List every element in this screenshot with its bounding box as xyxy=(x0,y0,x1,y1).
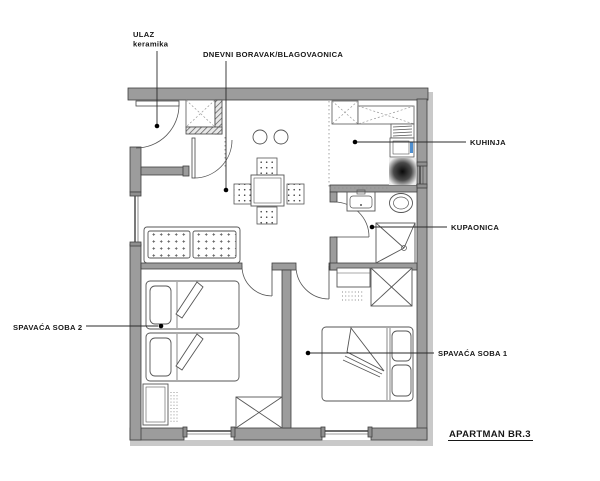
single-bed-2 xyxy=(146,333,239,381)
wall-bottom-2 xyxy=(234,428,322,440)
window-left xyxy=(130,192,141,246)
nightstand xyxy=(143,384,168,425)
kitchen-cabinet-wide xyxy=(358,106,414,124)
wall-bottom-3 xyxy=(371,428,427,440)
stool-2 xyxy=(274,130,288,144)
bedroom2-door xyxy=(242,266,272,296)
kitchen-fixtures xyxy=(329,101,416,188)
window-bottom-right xyxy=(321,427,372,437)
plan-title-group: APARTMAN BR.3 xyxy=(448,429,533,441)
plan-title: APARTMAN BR.3 xyxy=(449,429,531,440)
bathroom-sink xyxy=(347,190,375,211)
label-entrance: ULAZ xyxy=(133,30,155,39)
kitchen-cabinet-tall xyxy=(332,101,358,124)
wall-right xyxy=(417,99,427,440)
bedroom1-shelf xyxy=(337,268,370,287)
kitchen-fridge xyxy=(391,124,414,138)
toilet xyxy=(390,194,413,213)
wall-left-lower xyxy=(130,244,141,440)
sink-water-accent xyxy=(410,142,413,153)
chair-left xyxy=(234,184,251,204)
chair-top xyxy=(257,158,277,175)
kitchen-stove xyxy=(389,158,416,185)
dining-table xyxy=(251,175,284,206)
floor-plan-page: ULAZ keramika DNEVNI BORAVAK/BLAGOVAONIC… xyxy=(0,0,600,481)
single-bed-1 xyxy=(146,281,239,329)
label-bathroom: KUPAONICA xyxy=(451,223,499,232)
living-dining xyxy=(144,130,304,263)
wall-left-pier xyxy=(130,147,141,192)
stool-1 xyxy=(253,130,267,144)
floor-plan-svg: ULAZ keramika DNEVNI BORAVAK/BLAGOVAONIC… xyxy=(0,0,600,481)
sofa xyxy=(144,227,240,263)
floor-dots-bathroom-hall xyxy=(342,292,364,300)
bedroom1-wardrobe xyxy=(371,268,412,306)
sofa-cushion-1 xyxy=(148,231,190,258)
wall-bathroom-top xyxy=(330,185,417,192)
wall-bedroom-pier xyxy=(272,263,296,270)
bedroom1-door xyxy=(296,266,329,299)
wall-bathroom-left-a xyxy=(330,192,337,202)
kitchen-sink xyxy=(390,138,414,157)
bedroom2-wardrobe xyxy=(236,397,282,428)
wall-bedroom-separator xyxy=(282,270,291,428)
hatched-partition-bottom xyxy=(186,127,222,134)
floor-dots-nightstand xyxy=(171,392,177,424)
window-bottom-left xyxy=(183,427,235,437)
wall-hall xyxy=(141,167,188,175)
double-bed xyxy=(322,327,413,401)
label-living: DNEVNI BORAVAK/BLAGOVAONICA xyxy=(203,50,343,59)
sofa-cushion-2 xyxy=(193,231,236,258)
label-entrance-sub: keramika xyxy=(133,40,169,49)
shower xyxy=(376,223,415,263)
bedroom1-furniture xyxy=(322,268,413,401)
chair-right xyxy=(287,184,304,204)
wall-top xyxy=(128,88,428,100)
label-kitchen: KUHINJA xyxy=(470,138,506,147)
wall-hall-cap xyxy=(183,166,189,176)
label-bedroom2: SPAVAĆA SOBA 2 xyxy=(13,323,82,332)
wall-living-bedroom2 xyxy=(141,263,242,269)
bathroom-fixtures xyxy=(347,190,415,263)
bedroom2-furniture xyxy=(143,281,282,428)
chair-bottom xyxy=(257,207,277,224)
label-bedroom1: SPAVAĆA SOBA 1 xyxy=(438,349,508,358)
